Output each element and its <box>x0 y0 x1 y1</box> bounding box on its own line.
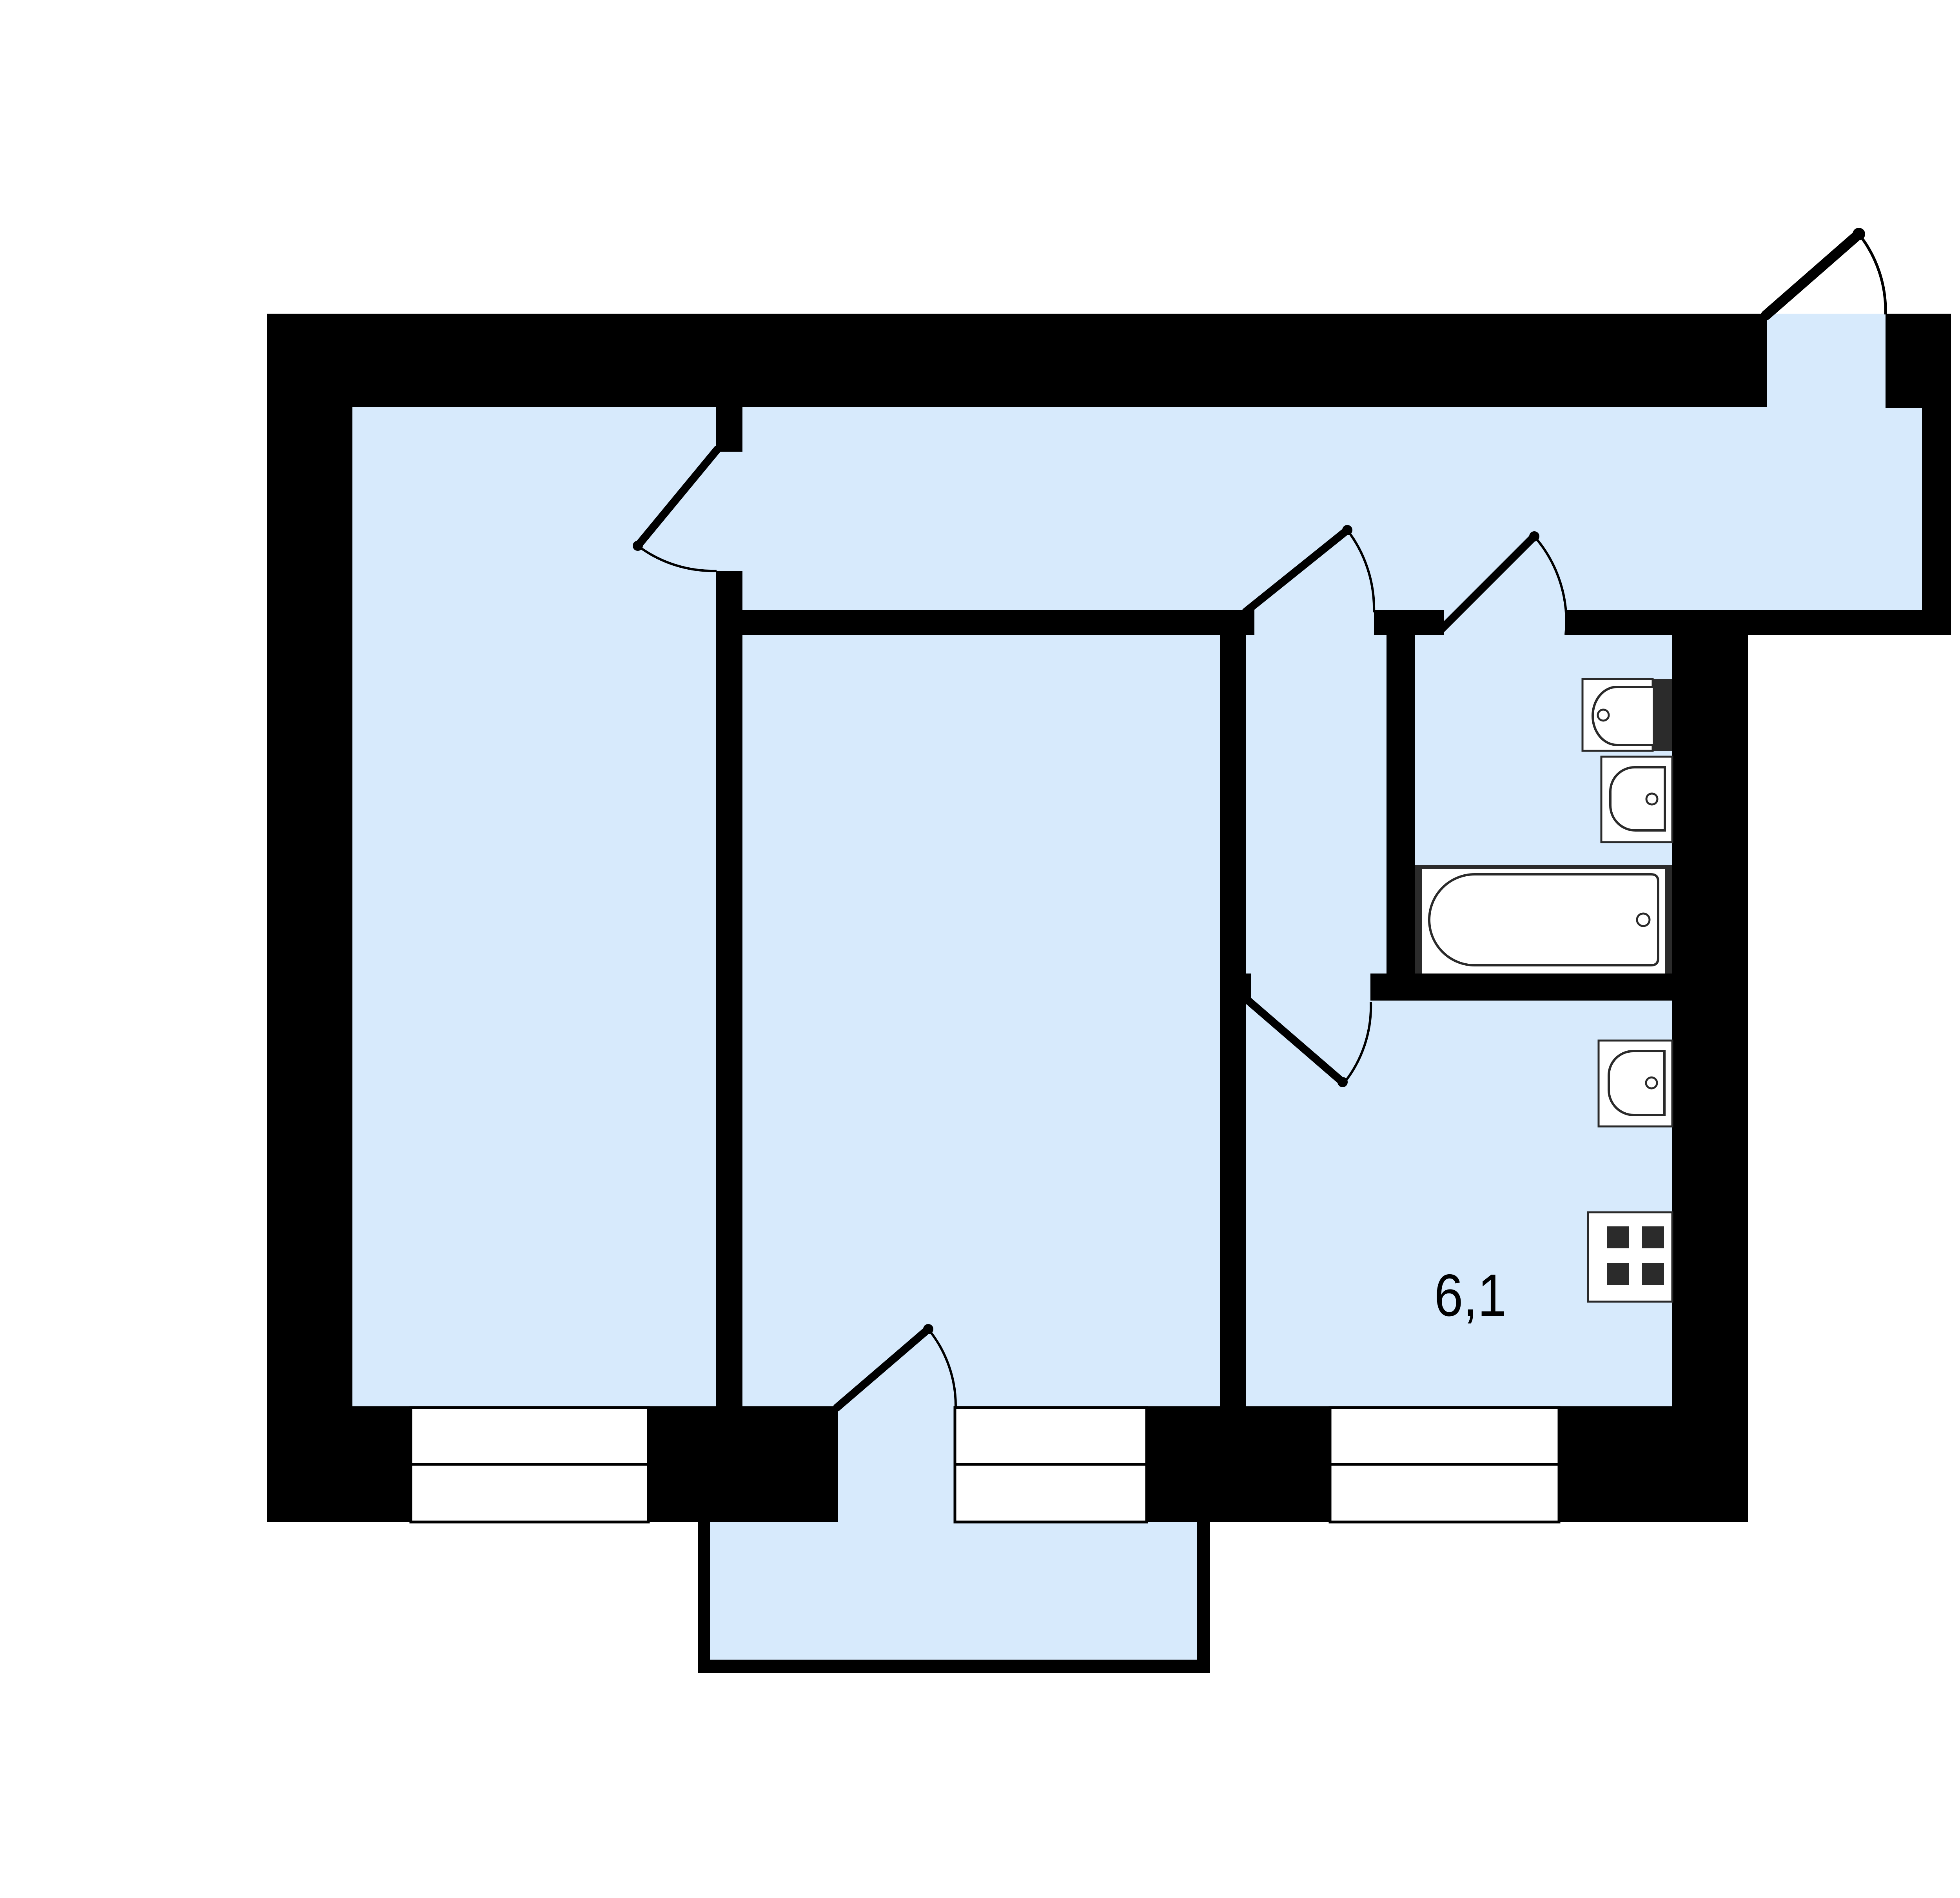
svg-text:6,1: 6,1 <box>1434 1262 1507 1329</box>
